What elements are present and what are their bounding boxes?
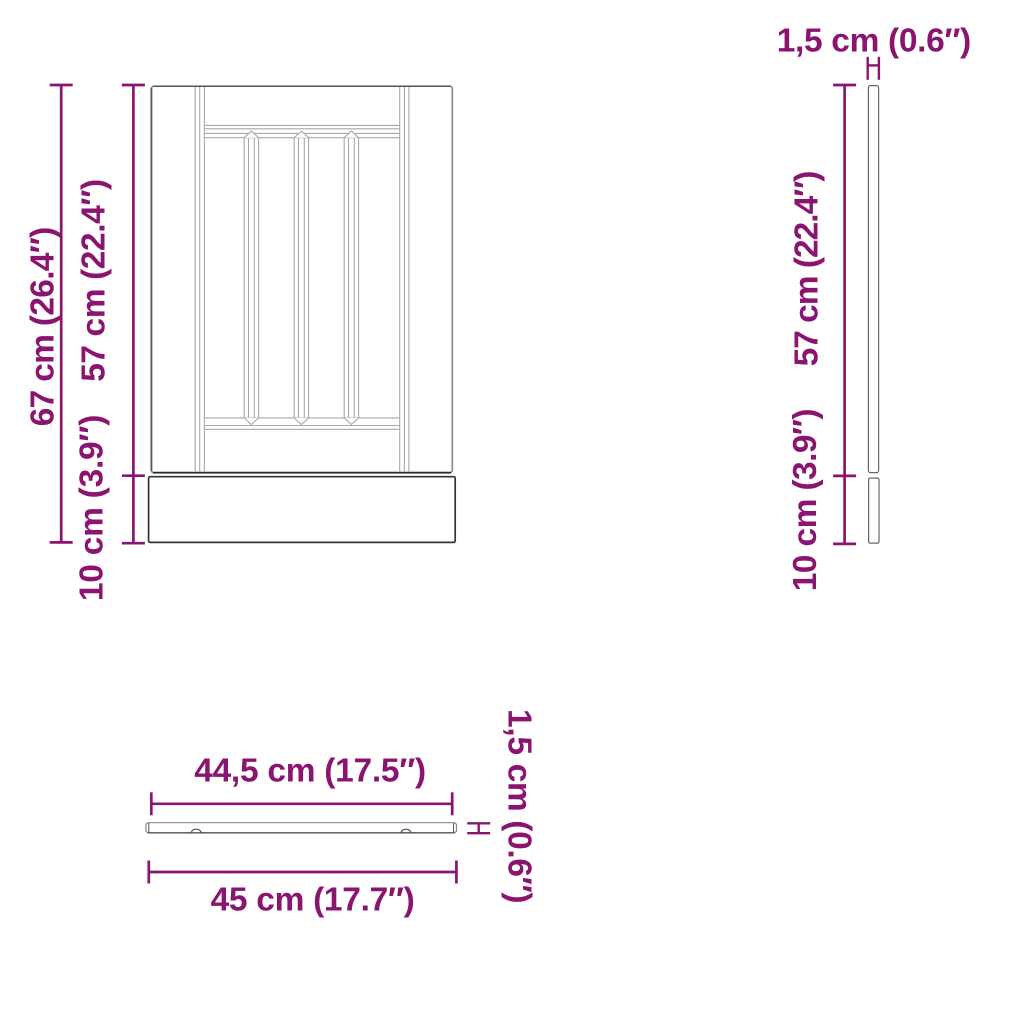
svg-text:57 cm (22.4″): 57 cm (22.4″) [76,179,113,382]
svg-text:44,5 cm (17.5″): 44,5 cm (17.5″) [194,753,426,790]
svg-text:45 cm (17.7″): 45 cm (17.7″) [211,882,415,919]
svg-text:1,5 cm (0.6″): 1,5 cm (0.6″) [777,23,972,60]
svg-text:10 cm (3.9″): 10 cm (3.9″) [73,415,110,602]
svg-text:1,5 cm (0.6″): 1,5 cm (0.6″) [501,709,538,904]
svg-text:67 cm (26.4″): 67 cm (26.4″) [24,227,61,427]
svg-text:10 cm (3.9″): 10 cm (3.9″) [787,409,824,592]
svg-text:57 cm (22.4″): 57 cm (22.4″) [788,171,825,367]
